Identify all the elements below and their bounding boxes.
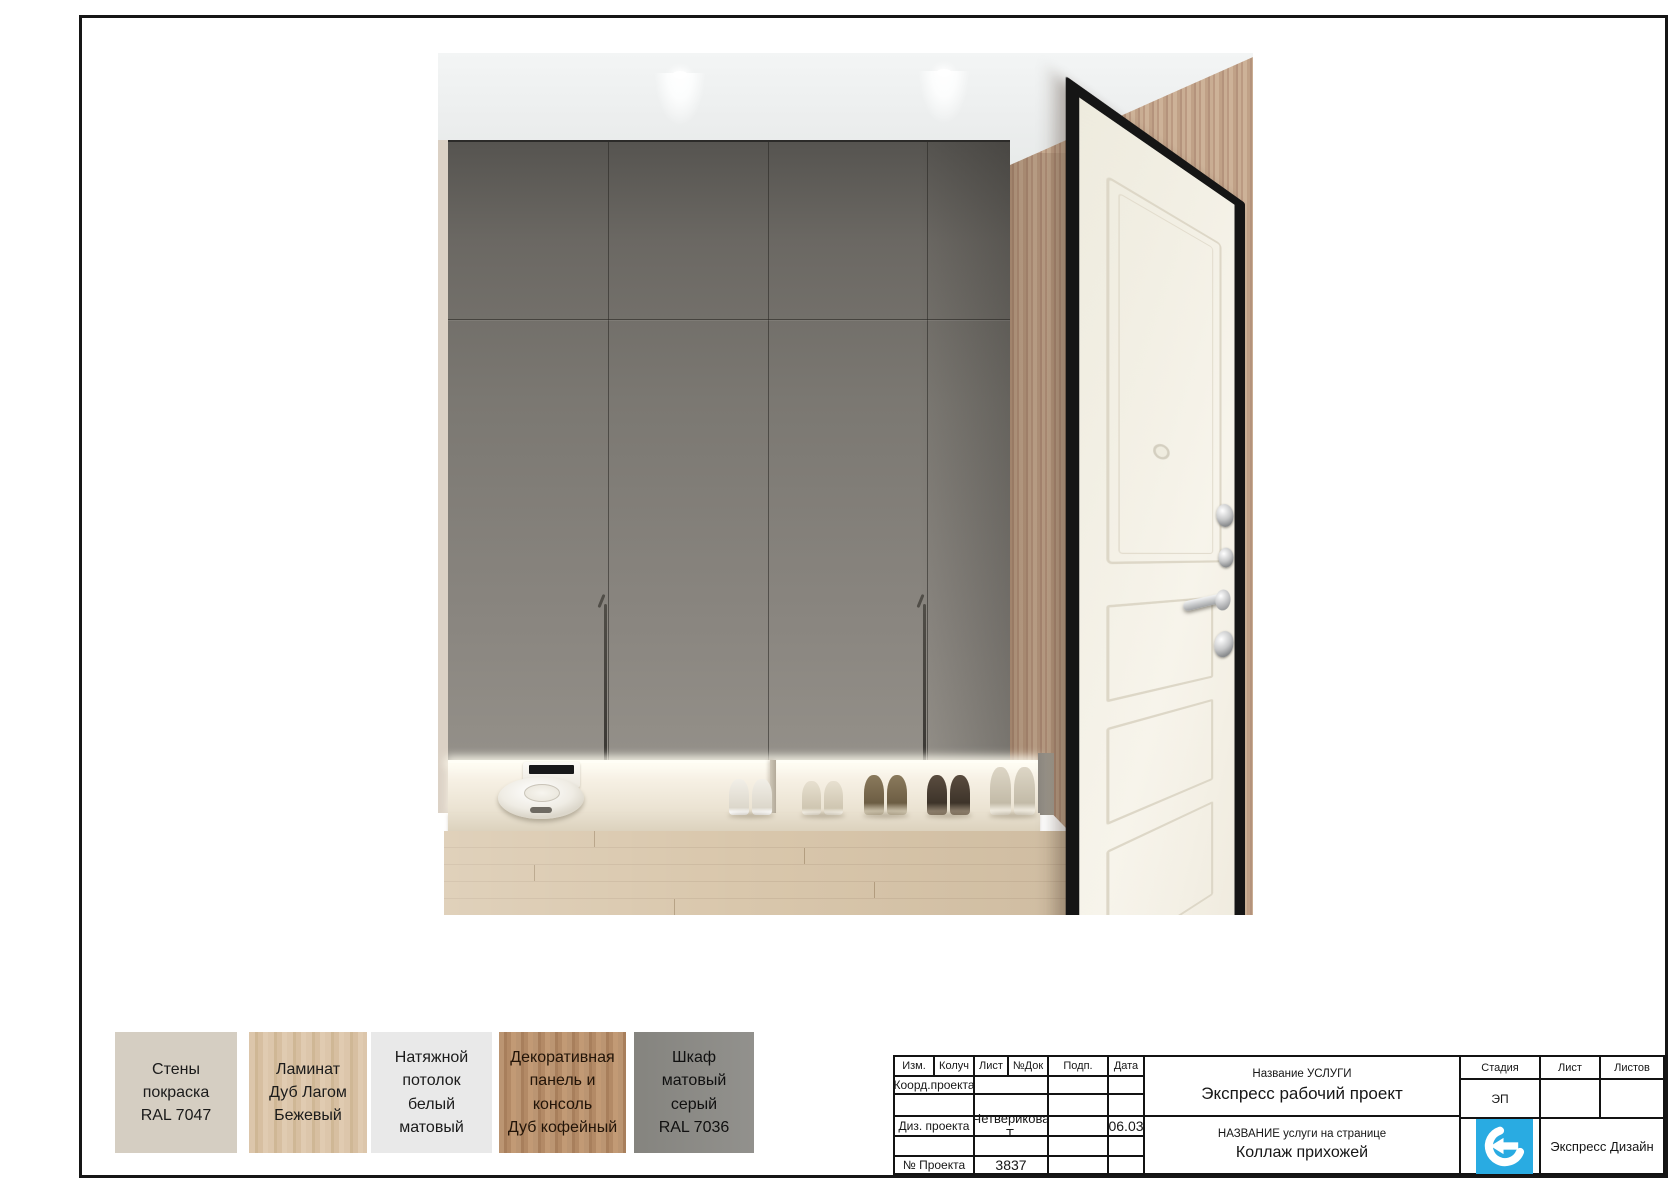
swatch-line: Дуб Лагом <box>269 1081 347 1104</box>
tb-empty-cell <box>1047 1155 1109 1175</box>
tb-coord-label: Коорд.проекта <box>893 1075 975 1095</box>
shoe-pair-beige-hightops <box>990 767 1011 815</box>
swatch-line: матовый <box>662 1069 727 1092</box>
door-lock-upper <box>1216 503 1233 527</box>
plank-joint <box>594 831 595 847</box>
tb-col-koluch: Колуч <box>933 1055 975 1077</box>
tb-page-value: Коллаж прихожей <box>1236 1144 1368 1162</box>
wardrobe-side-panel <box>1038 753 1054 815</box>
tb-coord-sign <box>1047 1075 1109 1095</box>
door-seam <box>927 142 928 762</box>
tb-empty-cell <box>1107 1155 1145 1175</box>
shoe-shadow <box>989 813 1037 818</box>
door-seam <box>608 142 609 762</box>
tb-empty-cell <box>1107 1093 1145 1117</box>
downlight-icon <box>937 69 951 75</box>
robot-vacuum <box>498 777 584 819</box>
shoe-shadow <box>863 813 909 818</box>
downlight-glow-right <box>912 71 976 141</box>
tb-designer-label: Диз. проекта <box>893 1115 975 1137</box>
swatch-line: Дуб кофейный <box>508 1116 617 1139</box>
swatch-line: RAL 7036 <box>659 1116 730 1139</box>
vacuum-top-disc <box>524 784 560 802</box>
tb-designer-value: Четверикова Т. <box>973 1115 1049 1137</box>
tb-col-data: Дата <box>1107 1055 1145 1077</box>
shoe-pair-white-sneakers <box>729 779 749 815</box>
shoe-pair-dark-boots <box>950 775 970 815</box>
tb-coord-value <box>973 1075 1049 1095</box>
swatch-line: потолок <box>402 1069 460 1092</box>
shoe-shadow <box>801 813 845 818</box>
swatch-line: Декоративная <box>510 1046 614 1069</box>
swatch-line: белый <box>408 1093 455 1116</box>
swatch-ceiling: Натяжной потолок белый матовый <box>371 1032 492 1153</box>
plank-joint <box>804 848 805 864</box>
tb-sheet-value <box>1539 1078 1601 1119</box>
swatch-laminate: Ламинат Дуб Лагом Бежевый <box>249 1032 367 1153</box>
shoe-pair-brown-boots <box>864 775 884 815</box>
design-sheet: { "titleblock": { "header_cols": ["Изм."… <box>0 0 1680 1188</box>
swatch-line: Бежевый <box>274 1104 342 1127</box>
tb-empty-cell <box>893 1093 975 1117</box>
shoe-pair-cream <box>824 781 843 815</box>
downlight-icon <box>673 71 687 77</box>
plank-joint <box>534 865 535 881</box>
tb-empty-cell <box>1047 1135 1109 1157</box>
shoe-pair-dark-boots <box>927 775 947 815</box>
tb-project-label: № Проекта <box>893 1155 975 1175</box>
swatch-line: серый <box>671 1093 717 1116</box>
tb-empty-cell <box>973 1135 1049 1157</box>
tb-sheet-label: Лист <box>1539 1055 1601 1080</box>
tb-logo-cell <box>1459 1117 1541 1175</box>
door-band-molding <box>1106 699 1213 826</box>
door-band-molding <box>1106 597 1213 703</box>
tb-coord-date <box>1107 1075 1145 1095</box>
tb-col-podp: Подп. <box>1047 1055 1109 1077</box>
tb-sheets-label: Листов <box>1599 1055 1665 1080</box>
swatch-line: Натяжной <box>395 1046 468 1069</box>
shoe-pair-cream <box>802 781 821 815</box>
tb-sheets-value <box>1599 1078 1665 1119</box>
swatch-walls-paint: Стены покраска RAL 7047 <box>115 1032 237 1153</box>
door-handle-rose <box>1215 589 1230 611</box>
tb-designer-date: 06.03 <box>1107 1115 1145 1137</box>
title-block: Изм. Колуч Лист №Док Подп. Дата Коорд.пр… <box>893 1055 1665 1175</box>
door-leaf <box>1079 97 1234 915</box>
swatch-line: Шкаф <box>672 1046 716 1069</box>
tb-col-ndok: №Док <box>1007 1055 1049 1077</box>
plank-joint <box>674 899 675 915</box>
tb-empty-cell <box>1107 1135 1145 1157</box>
shoe-pair-beige-hightops <box>1014 767 1035 815</box>
tb-page-label: НАЗВАНИЕ услуги на странице <box>1218 1128 1386 1140</box>
hallway-render-image <box>438 53 1253 915</box>
swatch-line: Ламинат <box>276 1058 340 1081</box>
tb-col-izm: Изм. <box>893 1055 935 1077</box>
door-seam <box>768 142 769 762</box>
wardrobe-grey-matte <box>448 140 1010 762</box>
tb-company-name: Экспресс Дизайн <box>1539 1117 1665 1175</box>
tb-empty-cell <box>1047 1093 1109 1117</box>
vacuum-grill <box>530 807 552 813</box>
shoe-pair-brown-boots <box>887 775 907 815</box>
swatch-decor-panel: Декоративная панель и консоль Дуб кофейн… <box>499 1032 626 1153</box>
dock-screen <box>529 765 574 774</box>
plank-joint <box>874 882 875 898</box>
express-design-logo-icon <box>1476 1119 1533 1174</box>
swatch-line: матовый <box>399 1116 464 1139</box>
swatch-line: Стены <box>152 1058 200 1081</box>
wardrobe-shadow <box>920 142 1010 762</box>
swatch-line: панель и консоль <box>499 1069 626 1115</box>
tb-project-value: 3837 <box>973 1155 1049 1175</box>
upper-cabinet-seam <box>448 319 1010 320</box>
wardrobe-handle-groove <box>923 604 926 762</box>
swatch-wardrobe: Шкаф матовый серый RAL 7036 <box>634 1032 754 1153</box>
swatch-line: RAL 7047 <box>141 1104 212 1127</box>
swatch-line: покраска <box>143 1081 210 1104</box>
tb-service-label: Название УСЛУГИ <box>1252 1068 1351 1080</box>
tb-designer-sign <box>1047 1115 1109 1137</box>
door-lock-middle <box>1218 548 1233 568</box>
door-panel-molding <box>1106 175 1221 564</box>
tb-service-cell: Название УСЛУГИ Экспресс рабочий проект <box>1143 1055 1461 1117</box>
tb-page-cell: НАЗВАНИЕ услуги на странице Коллаж прихо… <box>1143 1115 1461 1175</box>
shoe-shadow <box>728 813 774 818</box>
tb-col-list: Лист <box>973 1055 1009 1077</box>
wardrobe-handle-groove <box>604 604 607 762</box>
door-lock-lower <box>1214 630 1233 659</box>
entry-door <box>1066 76 1245 915</box>
shoe-shadow <box>926 813 972 818</box>
tb-service-value: Экспресс рабочий проект <box>1201 1084 1402 1104</box>
shoe-pair-white-sneakers <box>752 779 772 815</box>
tb-stage-label: Стадия <box>1459 1055 1541 1080</box>
tb-empty-cell <box>893 1135 975 1157</box>
downlight-glow-left <box>648 73 712 143</box>
tb-stage-value: ЭП <box>1459 1078 1541 1119</box>
